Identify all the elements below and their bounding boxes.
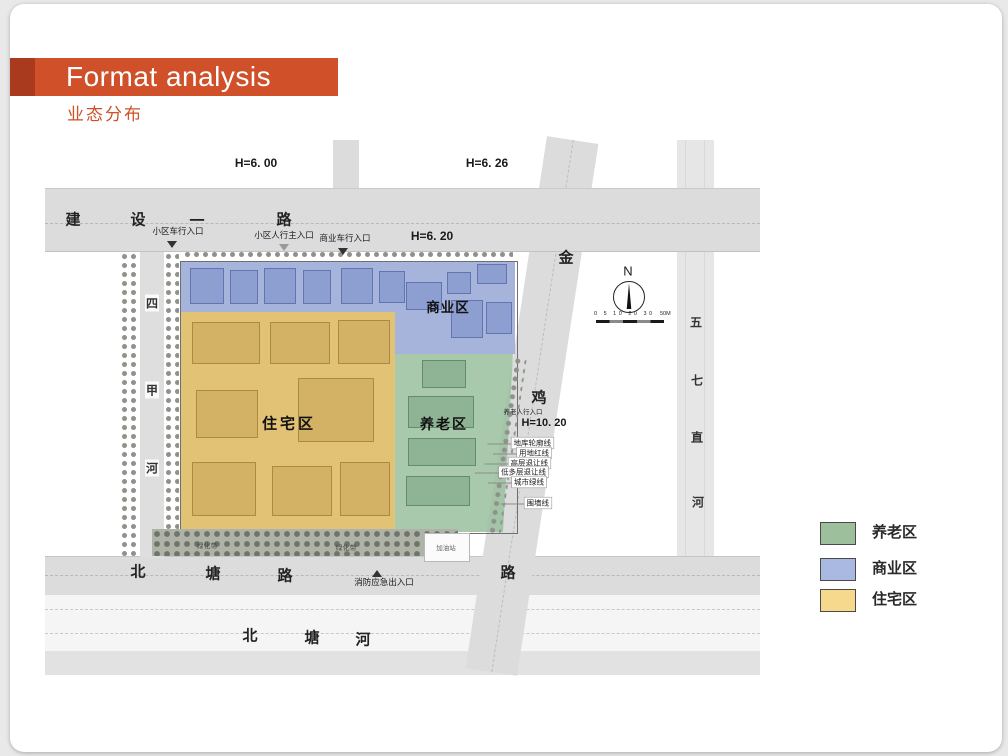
green-belt-label: 绿化带	[336, 543, 357, 553]
north-stub-road	[333, 140, 359, 190]
north-needle-icon	[626, 283, 632, 309]
boundary-line-label: 城市绿线	[512, 477, 546, 488]
entrance-arrow-icon	[167, 241, 177, 248]
legend-label-residential: 住宅区	[872, 589, 917, 611]
building-block	[264, 268, 296, 304]
entrance-label: 商业车行入口	[319, 232, 370, 244]
river-name-char: 河	[145, 460, 159, 477]
elevation-label: H=6. 26	[466, 156, 508, 170]
jianshe-road-band	[45, 188, 760, 252]
road-name-char: 路	[277, 565, 292, 586]
building-block	[406, 476, 470, 506]
river-name-char: 北	[242, 625, 257, 646]
elevation-label: H=6. 20	[411, 229, 453, 243]
building-block	[408, 438, 476, 466]
page-subtitle: 业态分布	[67, 100, 143, 125]
river-line	[45, 633, 760, 634]
road-name-char: 鸡	[531, 387, 546, 408]
beitang-river-band	[45, 595, 760, 651]
building-block	[341, 268, 373, 304]
tree-row-left-inner	[164, 252, 179, 558]
entrance-label: 小区人行主入口	[254, 229, 314, 241]
legend-label-elderly: 养老区	[872, 522, 917, 544]
north-label: N	[623, 264, 632, 279]
river-name-char: 河	[692, 494, 704, 511]
tree-row-site-top	[183, 250, 513, 262]
road-name-char: 设	[130, 209, 145, 230]
zone-label-elderly: 养老区	[420, 414, 468, 434]
river-name-char: 五	[690, 314, 702, 331]
boundary-line-label: 围墙线	[525, 498, 552, 509]
road-name-char: 北	[130, 561, 145, 582]
river-name-char: 七	[691, 372, 703, 389]
gas-station-label: 加油站	[436, 542, 456, 552]
river-name-char: 四	[145, 295, 159, 312]
river-name-char: 甲	[145, 382, 159, 399]
page-title: Format analysis	[66, 61, 271, 93]
building-block	[230, 270, 258, 304]
road-name-char: 金	[558, 247, 573, 268]
river-south-bank	[45, 651, 760, 675]
road-centerline	[45, 223, 760, 224]
river-name-char: 河	[355, 629, 370, 650]
entrance-arrow-icon	[338, 248, 348, 255]
road-name-char: 建	[65, 209, 80, 230]
zone-label-residential: 住宅区	[262, 413, 316, 434]
scale-ticks: 0 5 10 20 30	[594, 311, 655, 317]
scale-bar	[596, 320, 664, 323]
building-block	[192, 322, 260, 364]
building-block	[196, 390, 258, 438]
road-name-char: 路	[500, 562, 515, 583]
building-block	[190, 268, 224, 304]
building-block	[303, 270, 331, 304]
slide-canvas: Format analysis 业态分布	[10, 4, 1002, 752]
green-belt-label: 绿化带	[197, 541, 218, 551]
entrance-arrow-icon	[279, 244, 289, 251]
building-block	[422, 360, 466, 388]
building-block	[447, 272, 471, 294]
banner-accent-strip	[10, 58, 35, 96]
legend-label-commercial: 商业区	[872, 558, 917, 580]
building-block	[340, 462, 390, 516]
river-name-char: 直	[691, 429, 703, 446]
building-block	[192, 462, 256, 516]
building-block	[338, 320, 390, 364]
zone-label-commercial: 商业区	[426, 296, 470, 316]
elevation-label: H=10. 20	[522, 417, 567, 429]
legend-swatch-commercial	[820, 558, 856, 581]
north-arrow-icon	[613, 281, 645, 313]
entrance-label: 养老人行入口	[504, 406, 543, 416]
building-block	[270, 322, 330, 364]
road-name-char: 塘	[205, 563, 220, 584]
river-line	[45, 609, 760, 610]
entrance-label: 小区车行入口	[152, 225, 203, 237]
road-name-char: 路	[276, 209, 291, 230]
elevation-label: H=6. 00	[235, 156, 277, 170]
entrance-label: 消防应急出入口	[354, 576, 414, 588]
tree-row-left-outer	[120, 252, 140, 558]
legend-swatch-elderly	[820, 522, 856, 545]
scale-max: 50M	[660, 311, 671, 317]
legend-swatch-residential	[820, 589, 856, 612]
building-block	[486, 302, 512, 334]
river-name-char: 塘	[304, 627, 319, 648]
building-block	[272, 466, 332, 516]
building-block	[477, 264, 507, 284]
building-block	[379, 271, 405, 303]
slide-page: Format analysis 业态分布	[10, 4, 1002, 752]
